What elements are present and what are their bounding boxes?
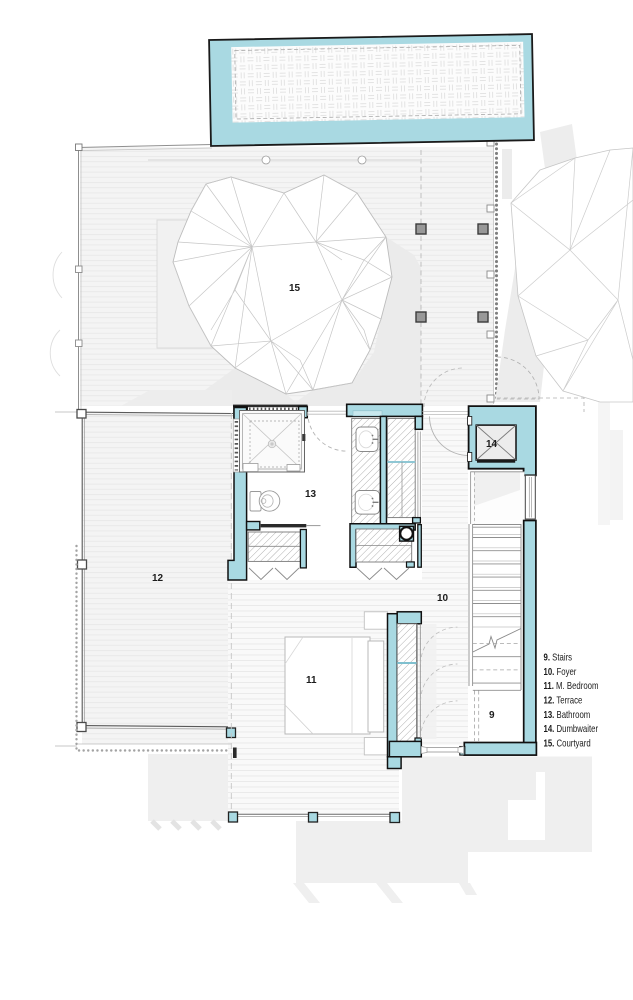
svg-text:11. M. Bedroom: 11. M. Bedroom <box>544 680 599 691</box>
svg-text:14: 14 <box>486 439 498 450</box>
svg-text:14. Dumbwaiter: 14. Dumbwaiter <box>544 723 599 734</box>
svg-text:9. Stairs: 9. Stairs <box>544 652 573 663</box>
svg-text:15. Courtyard: 15. Courtyard <box>544 738 591 749</box>
svg-text:13. Bathroom: 13. Bathroom <box>544 709 591 720</box>
svg-text:12: 12 <box>152 573 164 584</box>
svg-text:9: 9 <box>489 710 495 721</box>
svg-text:10. Foyer: 10. Foyer <box>544 666 577 677</box>
svg-text:13: 13 <box>305 489 317 500</box>
svg-text:12. Terrace: 12. Terrace <box>544 695 583 706</box>
svg-text:11: 11 <box>306 675 317 686</box>
svg-text:10: 10 <box>437 593 449 604</box>
svg-text:15: 15 <box>289 283 301 294</box>
